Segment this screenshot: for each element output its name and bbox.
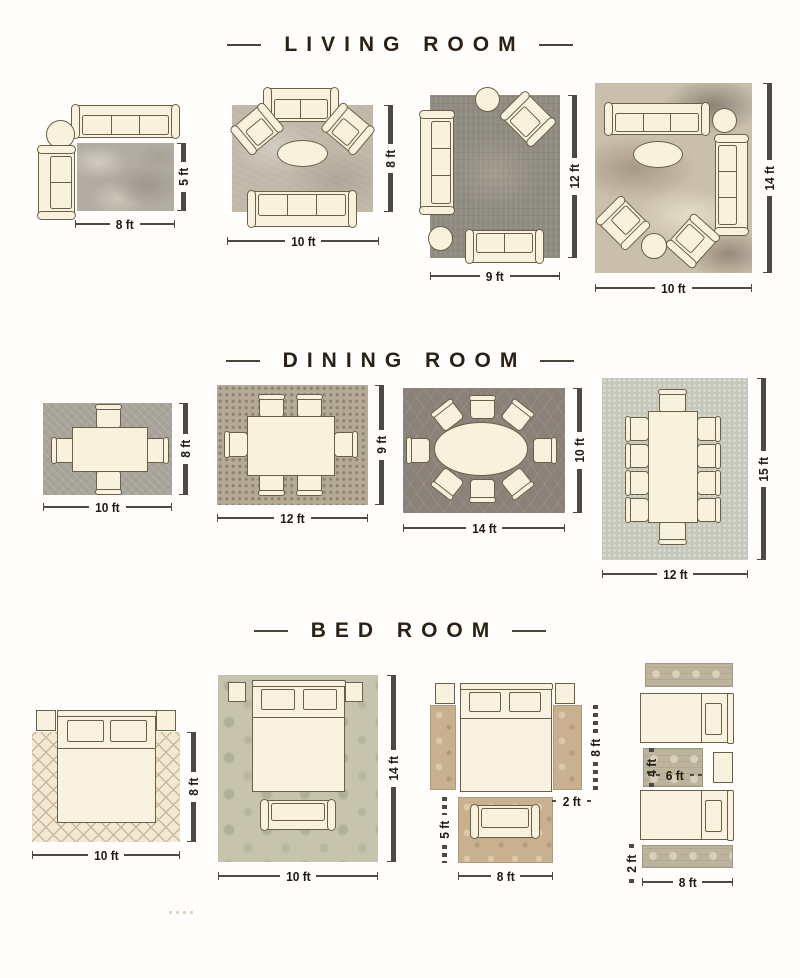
nightstand: [435, 683, 455, 704]
sofa-cushions: [615, 113, 699, 132]
sofa-cushions: [50, 156, 72, 209]
duvet-line: [701, 694, 702, 742]
pillow: [705, 800, 722, 832]
title-dash-left: [254, 630, 288, 633]
dimension-label: 8 ft: [384, 145, 397, 172]
nightstand: [345, 682, 363, 702]
three-seat-sofa: [249, 191, 355, 227]
headboard: [727, 790, 734, 841]
rug-width-dimension: 10 ft: [595, 281, 752, 295]
rug-height-dimension: 14 ft: [762, 83, 776, 273]
dining-chair: [697, 417, 718, 441]
long-dining-table: [648, 411, 698, 523]
dining-chair: [533, 438, 554, 463]
title-dash-right: [540, 360, 574, 363]
rug-height-dimension: 14 ft: [386, 675, 400, 862]
queen-bed: [57, 710, 156, 823]
sofa-cushions: [476, 233, 533, 253]
nightstand: [228, 682, 246, 702]
dimension-label: 8 ft: [589, 734, 602, 761]
bed-layout-10x8: 10 ft 8 ft: [30, 700, 202, 868]
round-side-table: [475, 87, 500, 112]
dining-chair: [659, 392, 686, 413]
round-side-table: [428, 226, 453, 251]
dining-chair: [697, 444, 718, 468]
nightstand: [36, 710, 56, 731]
title-dash-right: [512, 630, 546, 633]
dimension-label: 5 ft: [177, 163, 190, 190]
runner-width-dimension: 8 ft: [642, 875, 733, 889]
headboard: [57, 710, 157, 717]
bench: [472, 805, 538, 838]
bed-layout-runners: 8 ft 2 ft 5 ft 8 ft: [425, 668, 605, 886]
dining-layout-12x15: 12 ft 15 ft: [598, 375, 778, 587]
dimension-label: 14 ft: [467, 522, 501, 535]
oval-coffee-table: [633, 141, 683, 168]
section-title-text: LIVING ROOM: [275, 33, 524, 57]
rug-width-dimension: 10 ft: [227, 234, 379, 248]
dining-chair: [697, 471, 718, 495]
dimension-label: 2 ft: [625, 850, 638, 877]
rug-size-guide-infographic: LIVING ROOM 8 ft 5 ft 10 ft 8 ft: [0, 0, 800, 978]
dining-chair: [470, 479, 495, 500]
runner-rug: [645, 663, 733, 687]
nightstand: [555, 683, 575, 704]
runner-rug: [553, 705, 582, 790]
dimension-label: 10 ft: [573, 434, 586, 468]
title-dash-right: [539, 44, 573, 47]
title-dash-left: [226, 360, 260, 363]
rug-width-dimension: 10 ft: [218, 869, 378, 883]
pillow: [110, 720, 147, 742]
dimension-label: 8 ft: [179, 435, 192, 462]
two-seat-sofa: [265, 88, 337, 122]
pillow: [509, 692, 541, 712]
rug-height-dimension: 8 ft: [186, 732, 200, 842]
dimension-label: 9 ft: [481, 270, 508, 283]
dimension-label: 8 ft: [492, 870, 519, 883]
living-layout-8x5: 8 ft 5 ft: [30, 95, 202, 240]
three-seat-sofa: [420, 112, 454, 213]
dimension-label: 6 ft: [661, 769, 688, 782]
two-seat-sofa: [38, 147, 75, 218]
dining-room-section-title: DINING ROOM: [0, 349, 800, 373]
dimension-label: 12 ft: [568, 160, 581, 194]
dimension-label: 10 ft: [286, 235, 320, 248]
dining-chair: [470, 398, 495, 419]
runner-height-dimension: 8 ft: [588, 705, 602, 790]
dining-chair: [628, 471, 649, 495]
runner-width-dimension: 2 ft: [552, 794, 590, 808]
sofa-cushions: [258, 194, 346, 216]
title-dash-left: [227, 44, 261, 47]
nightstand: [713, 752, 733, 783]
dimension-label: 15 ft: [757, 452, 770, 486]
rug-height-dimension: 9 ft: [374, 385, 388, 505]
dining-layout-12x9: 12 ft 9 ft: [214, 383, 388, 528]
runner-rug: [642, 845, 733, 868]
sofa-cushions: [718, 145, 737, 225]
dimension-label: 10 ft: [89, 849, 123, 862]
dining-chair: [334, 432, 355, 457]
three-seat-sofa: [715, 136, 748, 234]
queen-bed: [460, 683, 552, 792]
oval-coffee-table: [277, 140, 328, 167]
round-side-table: [641, 233, 667, 259]
rug-height-dimension: 12 ft: [567, 95, 581, 258]
dining-chair: [409, 438, 430, 463]
oval-dining-table: [434, 422, 528, 476]
dining-table: [247, 416, 335, 476]
rug-width-dimension: 12 ft: [602, 567, 748, 581]
rug-width-dimension: 14 ft: [403, 521, 565, 535]
bench: [262, 800, 334, 830]
duvet-line: [58, 748, 155, 749]
queen-bed: [252, 680, 345, 792]
bench-cushion: [271, 803, 325, 821]
dimension-label: 10 ft: [281, 870, 315, 883]
sofa-cushions: [431, 121, 451, 204]
dimension-label: 10 ft: [91, 501, 125, 514]
pillow: [67, 720, 104, 742]
dining-layout-14x10: 14 ft 10 ft: [400, 386, 584, 541]
loveseat: [467, 230, 542, 263]
duvet-line: [253, 717, 344, 718]
chair-cushion: [674, 223, 705, 254]
small-rug-width-dimension: 6 ft: [648, 768, 702, 782]
rug-width-dimension: 10 ft: [32, 848, 180, 862]
dining-chair: [697, 498, 718, 522]
sofa-cushions: [82, 115, 169, 135]
dimension-label: 8 ft: [674, 876, 701, 889]
twin-bed: [640, 693, 733, 743]
duvet-line: [701, 791, 702, 839]
area-rug: [77, 143, 174, 211]
dimension-label: 9 ft: [375, 431, 388, 458]
section-title-text: BED ROOM: [302, 619, 499, 643]
duvet-line: [461, 718, 551, 719]
headboard: [460, 683, 553, 690]
dimension-label: 5 ft: [438, 816, 451, 843]
bench-cushion: [481, 808, 529, 828]
three-seat-sofa: [606, 103, 708, 135]
rug-height-dimension: 8 ft: [383, 105, 397, 212]
rug-height-dimension: 5 ft: [176, 143, 190, 211]
headboard: [727, 693, 734, 744]
round-side-table: [712, 108, 737, 133]
rug-width-dimension: 9 ft: [430, 269, 560, 283]
dimension-label: 8 ft: [187, 773, 200, 800]
bed-layout-twin-beds: 4 ft 6 ft 2 ft 8 ft: [622, 660, 784, 895]
dining-chair: [96, 470, 121, 492]
dimension-label: 12 ft: [658, 568, 692, 581]
living-room-section-title: LIVING ROOM: [0, 33, 800, 57]
pillow: [469, 692, 501, 712]
section-title-text: DINING ROOM: [274, 349, 527, 373]
dining-layout-10x8: 10 ft 8 ft: [40, 400, 195, 515]
rug-height-dimension: 10 ft: [572, 388, 586, 513]
dimension-label: 14 ft: [763, 161, 776, 195]
rug-width-dimension: 12 ft: [217, 511, 368, 525]
dimension-label: 14 ft: [387, 752, 400, 786]
pillow: [303, 689, 337, 710]
foot-rug-width-dimension: 8 ft: [458, 869, 553, 883]
dimension-label: 12 ft: [276, 512, 310, 525]
dining-chair: [297, 397, 322, 418]
dining-chair: [628, 498, 649, 522]
dimension-label: 2 ft: [558, 795, 585, 808]
sofa-cushions: [274, 99, 328, 119]
living-layout-9x12: 9 ft 12 ft: [415, 85, 587, 285]
living-layout-10x8: 10 ft 8 ft: [225, 86, 399, 248]
rug-height-dimension: 15 ft: [756, 378, 770, 560]
dining-chair: [259, 397, 284, 418]
foot-rug-height-dimension: 5 ft: [437, 797, 451, 863]
pillow: [705, 703, 722, 735]
runner-rug: [430, 705, 456, 790]
dining-chair: [628, 417, 649, 441]
rug-height-dimension: 8 ft: [178, 403, 192, 495]
bed-layout-10x14: 10 ft 14 ft: [215, 673, 402, 891]
headboard: [252, 680, 346, 687]
dining-chair: [227, 432, 248, 457]
rug-width-dimension: 8 ft: [75, 217, 175, 231]
runner-height-dimension: 2 ft: [624, 844, 638, 869]
rug-width-dimension: 10 ft: [43, 500, 172, 514]
living-layout-10x14: 10 ft 14 ft: [593, 83, 785, 303]
twin-bed: [640, 790, 733, 840]
pillow: [261, 689, 295, 710]
dining-chair: [659, 521, 686, 542]
bed-room-section-title: BED ROOM: [0, 619, 800, 643]
dimension-label: 8 ft: [111, 218, 138, 231]
watermark: [169, 911, 193, 914]
three-seat-sofa: [73, 105, 178, 138]
dining-chair: [96, 407, 121, 429]
dining-table: [72, 427, 148, 472]
dimension-label: 10 ft: [657, 282, 691, 295]
nightstand: [156, 710, 176, 731]
dining-chair: [628, 444, 649, 468]
